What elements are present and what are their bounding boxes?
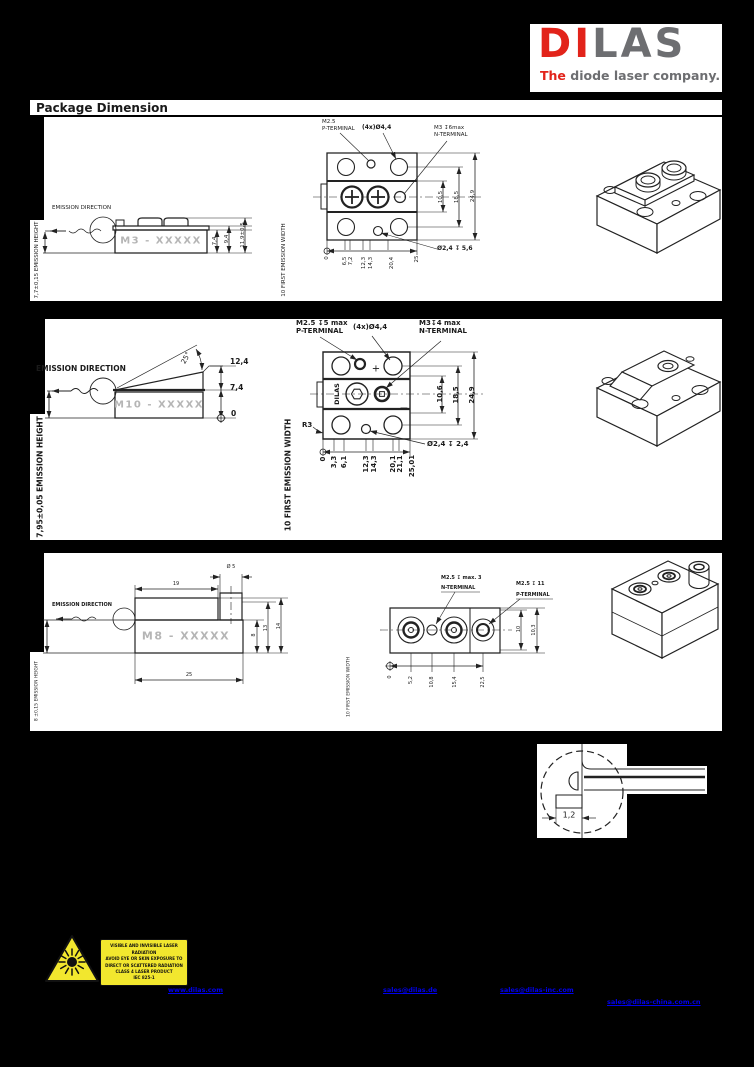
m10-minus-sign: − xyxy=(399,402,408,415)
m10-emission-direction-label: EMISSION DIRECTION xyxy=(36,364,126,373)
m10-bore-label: Ø2,4 ↧ 2,4 xyxy=(427,440,469,448)
laser-warning-label: VISIBLE AND INVISIBLE LASER RADIATION AV… xyxy=(100,939,188,986)
m3-right-dim-249: 24,9 xyxy=(470,190,476,202)
m8-dim-19: 19 xyxy=(173,581,179,587)
tagline-rest: diode laser company. xyxy=(566,68,720,83)
m10-linework xyxy=(30,319,722,540)
m8-bottom-dim-0: 0 xyxy=(387,675,393,678)
m8-bottom-dim-52: 5,2 xyxy=(408,676,414,684)
m3-right-dim-185: 18,5 xyxy=(454,191,460,203)
m10-emission-height-label: 7,95±0,05 EMISSION HEIGHT xyxy=(36,416,45,538)
m8-top-view xyxy=(380,592,553,672)
m10-holes-label: (4x)Ø4,4 xyxy=(353,323,387,331)
m3-emission-height-label: 7,7±0,15 EMISSION HEIGHT xyxy=(34,222,40,299)
logo-las: LAS xyxy=(592,21,686,67)
detail-dim-12: 1,2 xyxy=(563,811,576,820)
laser-warning-triangle xyxy=(40,933,104,988)
m10-side-view xyxy=(45,345,236,423)
m10-bottom-dim-211: 21,1 xyxy=(396,455,404,472)
detail-view-linework xyxy=(537,740,722,842)
m3-side-dim-74: 7,4 xyxy=(212,237,218,246)
m10-side-dim-74: 7,4 xyxy=(230,383,243,392)
m3-emission-width-label: 10 FIRST EMISSION WIDTH xyxy=(281,223,287,296)
m3-model-label: M3 - XXXXX xyxy=(120,236,202,247)
m10-p-terminal-label: P-TERMINAL xyxy=(296,327,343,335)
m8-n-terminal-size: M2.5 ↧ max. 3 xyxy=(441,575,481,581)
m8-p-terminal-size: M2.5 ↧ 11 xyxy=(516,581,544,587)
m3-bottom-dim-143: 14,3 xyxy=(368,257,374,269)
logo-tagline: The diode laser company. xyxy=(540,68,720,83)
m8-bottom-dim-225: 22,5 xyxy=(480,676,486,687)
m3-p-terminal-size: M2.5 xyxy=(322,119,336,125)
m3-emission-direction-label: EMISSION DIRECTION xyxy=(52,205,111,211)
m10-bottom-dim-2501: 25,01 xyxy=(408,455,416,477)
m3-p-terminal-label: P-TERMINAL xyxy=(322,126,355,132)
m10-bottom-dim-123: 12,3 xyxy=(362,455,370,472)
m8-right-dim-103: 10,3 xyxy=(531,624,537,635)
dilas-logo: DILAS The diode laser company. xyxy=(530,24,722,92)
m10-bottom-dim-61: 6,1 xyxy=(340,456,348,468)
m8-p-terminal-label: P-TERMINAL xyxy=(516,592,550,598)
page-title: Package Dimension xyxy=(36,101,168,115)
m8-diameter-label: Ø 5 xyxy=(227,564,236,570)
m3-n-terminal-label: N-TERMINAL xyxy=(434,132,468,138)
m3-holes-label: (4x)Ø4,4 xyxy=(362,124,391,131)
m3-isometric-view xyxy=(597,161,720,253)
m8-dim-25: 25 xyxy=(186,672,192,678)
m8-bottom-dim-154: 15,4 xyxy=(452,676,458,687)
m8-right-dim-10: 10 xyxy=(516,626,522,632)
m10-radius-label: R3 xyxy=(302,421,312,429)
m10-n-terminal-label: N-TERMINAL xyxy=(419,327,467,335)
m10-model-label: M10 - XXXXX xyxy=(114,400,204,411)
m10-bottom-dim-0: 0 xyxy=(319,457,327,462)
sales-asia-link[interactable]: sales@dilas-china.com.cn xyxy=(607,998,701,1006)
m10-n-terminal-size: M3↧4 max xyxy=(419,319,461,327)
m3-bore-label: Ø2,4 ↧ 5,6 xyxy=(437,245,473,252)
m3-bottom-dim-123: 12,3 xyxy=(361,257,367,269)
m8-side-dim-14: 14 xyxy=(276,623,282,629)
m8-emission-height-label: 8 ±0,15 EMISSION HEIGHT xyxy=(35,661,40,721)
warning-line-1: VISIBLE AND INVISIBLE LASER RADIATION xyxy=(101,943,187,956)
m8-isometric-view xyxy=(612,561,718,658)
m10-p-terminal-size: M2.5 ↧5 max xyxy=(296,319,348,327)
m10-right-dim-249: 24,9 xyxy=(468,386,476,403)
m8-linework xyxy=(30,553,722,731)
sales-usa-link[interactable]: sales@dilas-inc.com xyxy=(500,986,574,994)
m10-brand-mark: DILAS xyxy=(333,383,341,405)
m8-model-label: M8 - XXXXX xyxy=(142,630,230,643)
section-header: Package Dimension xyxy=(30,100,722,117)
warning-line-5: IEC 825-1 xyxy=(101,975,187,981)
m3-linework xyxy=(30,117,722,301)
logo-wordmark: DILAS xyxy=(538,20,686,68)
m10-bottom-dim-143: 14,3 xyxy=(370,455,378,472)
m8-side-dim-8: 8 xyxy=(251,633,257,636)
m8-side-dim-13: 13 xyxy=(263,625,269,631)
page: DILAS The diode laser company. Package D… xyxy=(0,0,754,1067)
logo-di: DI xyxy=(538,21,592,67)
m3-bottom-dim-72: 7,2 xyxy=(348,257,354,266)
sales-germany-link[interactable]: sales@dilas.de xyxy=(383,986,437,994)
m10-side-dim-124: 12,4 xyxy=(230,357,249,366)
m3-bottom-dim-0: 0 xyxy=(324,256,330,260)
m10-emission-width-label: 10 FIRST EMISSION WIDTH xyxy=(284,419,293,531)
m3-side-dim-119: 11,9±0,5 xyxy=(240,222,246,248)
m3-right-dim-105: 10,5 xyxy=(438,191,444,203)
m10-right-dim-106: 10,6 xyxy=(436,385,444,402)
m3-n-terminal-size: M3 ↧6max xyxy=(434,125,464,131)
m8-emission-direction-label: EMISSION DIRECTION xyxy=(52,602,112,608)
m10-side-dim-0: 0 xyxy=(231,409,236,418)
m3-bottom-dim-25: 25 xyxy=(414,256,420,263)
m10-plus-sign: + xyxy=(372,364,380,375)
m3-bottom-dim-204: 20,4 xyxy=(389,257,395,269)
m10-right-dim-185: 18,5 xyxy=(452,386,460,403)
tagline-the: The xyxy=(540,68,566,83)
m8-bottom-dim-108: 10,8 xyxy=(429,676,435,687)
website-link[interactable]: www.dilas.com xyxy=(168,986,223,994)
m8-n-terminal-label: N-TERMINAL xyxy=(441,585,475,591)
m8-emission-width-label: 10 FIRST EMISSION WIDTH xyxy=(347,657,352,717)
m10-isometric-view xyxy=(597,351,720,446)
m3-side-dim-94: 9,4 xyxy=(224,235,230,244)
m10-bottom-dim-33: 3,3 xyxy=(330,456,338,468)
